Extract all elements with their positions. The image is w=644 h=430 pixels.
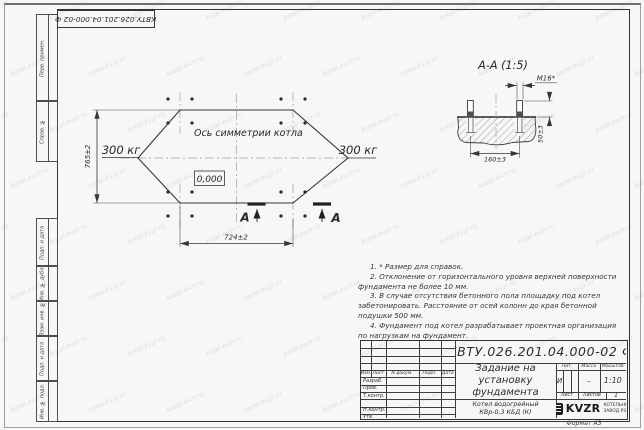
protrusion-dim-text: 50±3 [537, 125, 545, 143]
scale-value: 1:10 [600, 370, 626, 392]
section-view: А-А (1:5) М16* [457, 59, 557, 164]
section-letter-right: А [330, 211, 340, 225]
load-labels: 300 кг 300 кг [102, 143, 379, 158]
load-left-text: 300 кг [102, 143, 142, 157]
elevation-text: 0,000 [197, 175, 223, 185]
foundation-outline [138, 110, 348, 203]
scanned-drawing-sheet: { "stamp_top": "КВТУ.026.201.04.000-02 Ф… [0, 0, 644, 430]
section-letter-left: А [239, 211, 249, 225]
plan-width-dimension: 724±2 [180, 206, 293, 247]
protruding-bolts [468, 101, 523, 118]
load-right-text: 300 кг [339, 143, 379, 157]
grid-line [361, 399, 455, 400]
thread-label-text: М16* [537, 75, 556, 83]
sheets-value: 1 [606, 392, 626, 399]
note-line: 4. Фундамент под котел разрабатывает про… [358, 321, 626, 341]
foundation-plan: 765±2 724±2 300 кг 300 кг Ось симметрии … [84, 92, 378, 247]
doc-title-line: фундамента [472, 387, 538, 399]
col-ndokum: N докум. [386, 370, 419, 377]
company-name: КОТЕЛЬНЫЙ ЗАВОД РЭП [603, 403, 626, 413]
product-line: КВр-0,3 КБД (К) [479, 409, 531, 417]
note-line: 1. * Размер для справок. [358, 262, 626, 272]
grid-line [361, 348, 455, 349]
col-data: Дата [441, 370, 456, 377]
title-block: КВТУ.026.201.04.000-02 Ф Изм. Лист N док… [360, 340, 628, 420]
note-line: 2. Отклонение от горизонтального уровня … [358, 272, 626, 292]
note-line: 3. В случае отсутствия бетонного пола пл… [358, 291, 626, 320]
plan-height-dim-text: 765±2 [84, 144, 92, 168]
row-razrab: Разраб. [361, 377, 386, 384]
company-line: КОТЕЛЬНЫЙ [603, 403, 626, 408]
row-utv: Утв. [361, 414, 386, 421]
symmetry-axis-label: Ось симметрии котла [194, 128, 303, 139]
mass-label: Масса [578, 363, 600, 370]
mass-value: – [578, 370, 600, 392]
company-logo-cell: KVZR КОТЕЛЬНЫЙ ЗАВОД РЭП [556, 399, 626, 418]
kvzr-logo-word: KVZR [566, 402, 601, 415]
doc-title-line: установку [479, 375, 533, 387]
section-title: А-А (1:5) [477, 59, 528, 72]
grid-line [361, 363, 455, 364]
bolt-spacing-dim-text: 160±3 [484, 156, 506, 164]
sheet-label: Лист [556, 392, 578, 399]
product-line: Котел водогрейный [472, 401, 538, 409]
technical-notes: 1. * Размер для справок. 2. Отклонение о… [358, 262, 626, 340]
plan-width-dim-text: 724±2 [224, 234, 248, 242]
product-cell: Котел водогрейный КВр-0,3 КБД (К) [455, 399, 556, 418]
lit-label: Лит. [556, 363, 578, 370]
row-nkontr: Н.контр. [361, 407, 386, 414]
col-podp: Подп. [419, 370, 441, 377]
grid-line [361, 356, 455, 357]
designation-cell: КВТУ.026.201.04.000-02 Ф [455, 341, 626, 363]
lit-value: И [556, 370, 563, 392]
kvzr-logo-icon [556, 403, 563, 415]
elevation-mark: 0,000 [195, 171, 225, 186]
doc-title-cell: Задание на установку фундамента [455, 363, 556, 399]
company-line: ЗАВОД РЭП [603, 409, 626, 414]
grid-line [563, 370, 564, 392]
col-list: Лист [371, 370, 386, 377]
col-izm: Изм. [361, 370, 371, 377]
doc-title-line: Задание на [475, 363, 536, 375]
sheets-label: Листов [578, 392, 606, 399]
format-label: Формат А3 [540, 420, 628, 427]
section-cut-marks: А А [239, 204, 340, 225]
scale-label: Масштаб [600, 363, 626, 370]
row-tkontr: Т.контр. [361, 392, 386, 399]
grid-line [571, 370, 572, 392]
row-prov: Пров. [361, 385, 386, 392]
center-lines [120, 92, 352, 228]
